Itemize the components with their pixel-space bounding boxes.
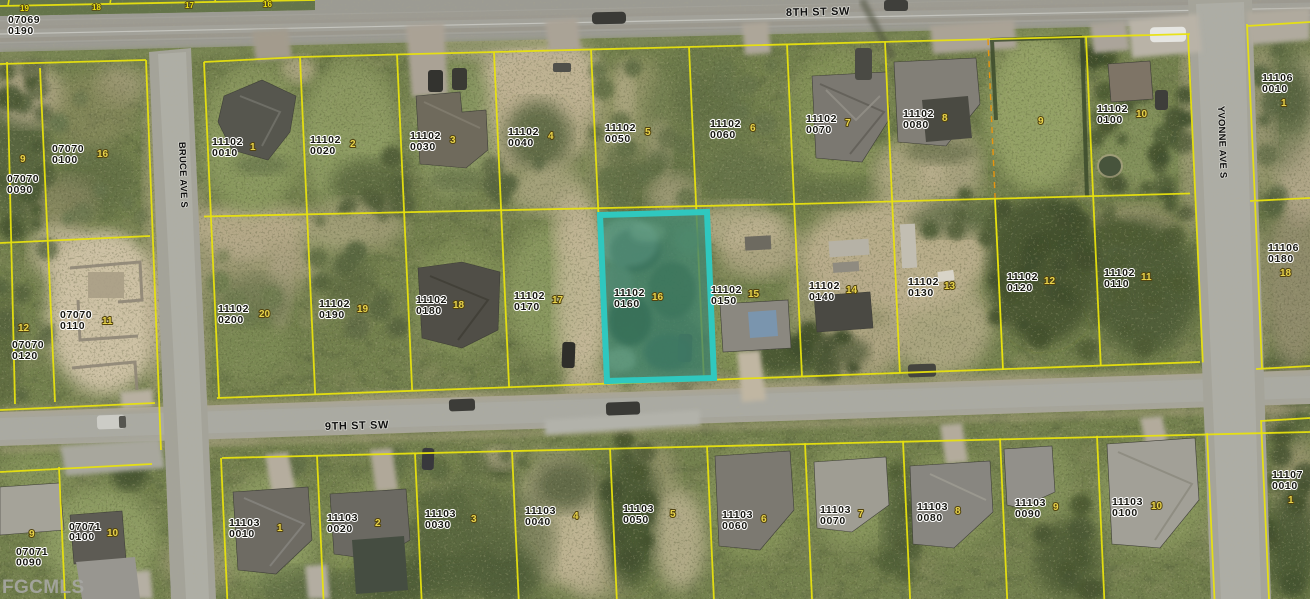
svg-text:7: 7 [858, 509, 864, 520]
svg-text:0040: 0040 [508, 137, 534, 149]
svg-text:0020: 0020 [310, 145, 336, 157]
svg-text:9: 9 [20, 154, 26, 165]
svg-text:3: 3 [450, 135, 456, 146]
svg-text:17: 17 [185, 1, 194, 10]
svg-text:0030: 0030 [425, 519, 451, 531]
svg-text:6: 6 [761, 514, 767, 525]
svg-text:8TH ST SW: 8TH ST SW [786, 6, 850, 19]
svg-text:0180: 0180 [416, 305, 442, 317]
svg-text:0010: 0010 [229, 528, 255, 540]
svg-text:5: 5 [670, 509, 676, 520]
svg-text:0110: 0110 [1104, 278, 1129, 290]
svg-text:0100: 0100 [52, 154, 78, 166]
svg-text:0010: 0010 [212, 147, 238, 159]
svg-text:6: 6 [750, 123, 756, 134]
svg-text:18: 18 [453, 300, 465, 311]
svg-text:12: 12 [1044, 276, 1056, 287]
svg-text:14: 14 [846, 285, 858, 296]
svg-text:16: 16 [263, 0, 272, 9]
svg-text:0050: 0050 [623, 514, 649, 526]
svg-text:0010: 0010 [1262, 83, 1288, 95]
svg-text:0090: 0090 [16, 557, 42, 569]
svg-text:0190: 0190 [8, 25, 34, 37]
svg-text:12: 12 [18, 323, 30, 334]
svg-text:13: 13 [944, 281, 956, 292]
svg-text:11: 11 [1141, 272, 1152, 283]
svg-text:0120: 0120 [1007, 282, 1033, 294]
svg-text:0030: 0030 [410, 141, 436, 153]
svg-text:FGCMLS: FGCMLS [2, 577, 85, 598]
svg-text:0060: 0060 [710, 129, 736, 141]
svg-text:9TH ST SW: 9TH ST SW [325, 419, 389, 433]
svg-text:1: 1 [1288, 495, 1294, 506]
svg-text:9: 9 [29, 529, 35, 540]
svg-text:1: 1 [250, 142, 256, 153]
svg-text:0050: 0050 [605, 133, 631, 145]
svg-text:4: 4 [548, 131, 554, 142]
svg-text:0130: 0130 [908, 287, 934, 299]
svg-text:7: 7 [845, 118, 851, 129]
svg-text:2: 2 [375, 518, 381, 529]
svg-text:0080: 0080 [917, 512, 943, 524]
svg-text:0170: 0170 [514, 301, 540, 313]
svg-text:10: 10 [1151, 501, 1163, 512]
svg-text:0200: 0200 [218, 314, 244, 326]
svg-text:16: 16 [97, 149, 109, 160]
svg-text:1: 1 [277, 523, 283, 534]
svg-text:18: 18 [92, 3, 101, 12]
svg-text:0190: 0190 [319, 309, 345, 321]
svg-text:9: 9 [1053, 502, 1059, 513]
svg-text:0060: 0060 [722, 520, 748, 532]
svg-text:18: 18 [1280, 268, 1292, 279]
svg-text:8: 8 [942, 113, 948, 124]
svg-text:0150: 0150 [711, 295, 737, 307]
svg-text:20: 20 [259, 309, 271, 320]
svg-text:0110: 0110 [60, 320, 85, 332]
svg-text:1: 1 [1281, 98, 1287, 109]
svg-text:16: 16 [652, 292, 664, 303]
svg-text:4: 4 [573, 511, 579, 522]
svg-text:5: 5 [645, 127, 651, 138]
svg-text:11: 11 [102, 316, 113, 327]
svg-text:0020: 0020 [327, 523, 353, 535]
svg-text:8: 8 [955, 506, 961, 517]
svg-text:9: 9 [1038, 116, 1044, 127]
svg-text:0100: 0100 [1112, 507, 1138, 519]
svg-text:0140: 0140 [809, 291, 835, 303]
svg-text:0100: 0100 [1097, 114, 1123, 126]
svg-text:15: 15 [748, 289, 760, 300]
svg-text:0040: 0040 [525, 516, 551, 528]
svg-text:10: 10 [107, 528, 119, 539]
svg-text:0080: 0080 [903, 119, 929, 131]
svg-text:2: 2 [350, 139, 356, 150]
svg-text:10: 10 [1136, 109, 1148, 120]
svg-text:0070: 0070 [820, 515, 846, 527]
svg-text:19: 19 [20, 4, 29, 13]
svg-text:BRUCE AVE S: BRUCE AVE S [176, 142, 189, 208]
svg-text:0090: 0090 [7, 184, 33, 196]
svg-text:0070: 0070 [806, 124, 832, 136]
svg-text:17: 17 [552, 295, 564, 306]
svg-text:0010: 0010 [1272, 480, 1298, 492]
svg-text:0120: 0120 [12, 350, 38, 362]
svg-text:0160: 0160 [614, 298, 640, 310]
svg-text:0100: 0100 [69, 531, 95, 543]
svg-text:19: 19 [357, 304, 369, 315]
svg-text:0090: 0090 [1015, 508, 1041, 520]
svg-text:3: 3 [471, 514, 477, 525]
svg-text:0180: 0180 [1268, 253, 1294, 265]
